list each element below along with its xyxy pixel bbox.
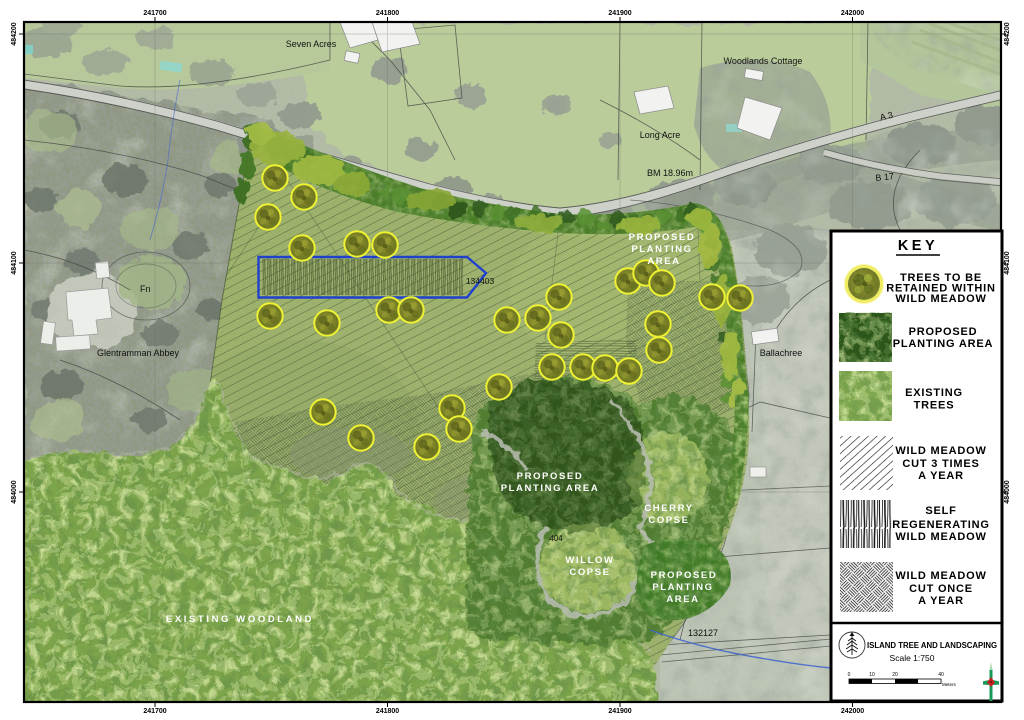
svg-text:WILLOW: WILLOW xyxy=(565,555,614,566)
svg-text:ISLAND TREE AND LANDSCAPING: ISLAND TREE AND LANDSCAPING xyxy=(867,641,997,650)
svg-text:A YEAR: A YEAR xyxy=(918,595,964,607)
svg-text:Glentramman Abbey: Glentramman Abbey xyxy=(97,348,180,358)
svg-text:484100: 484100 xyxy=(1004,251,1011,274)
svg-text:B 17: B 17 xyxy=(875,171,894,183)
svg-text:AREA: AREA xyxy=(647,256,680,267)
svg-text:Scale 1:750: Scale 1:750 xyxy=(890,653,935,663)
svg-text:484100: 484100 xyxy=(11,251,18,274)
svg-text:Seven Acres: Seven Acres xyxy=(286,39,337,49)
svg-text:BM 18.96m: BM 18.96m xyxy=(647,168,693,178)
svg-text:484000: 484000 xyxy=(11,480,18,503)
svg-text:0: 0 xyxy=(848,672,851,678)
svg-text:PROPOSED: PROPOSED xyxy=(629,232,696,243)
svg-text:Meters: Meters xyxy=(942,682,957,687)
svg-text:PLANTING AREA: PLANTING AREA xyxy=(501,483,600,494)
svg-text:241700: 241700 xyxy=(143,708,166,715)
svg-text:241800: 241800 xyxy=(376,708,399,715)
svg-text:PLANTING: PLANTING xyxy=(631,244,692,255)
svg-text:484200: 484200 xyxy=(11,22,18,45)
svg-text:WILD MEADOW: WILD MEADOW xyxy=(895,570,986,582)
svg-text:WILD MEADOW: WILD MEADOW xyxy=(895,293,986,305)
svg-text:REGENERATING: REGENERATING xyxy=(892,519,989,531)
svg-text:484200: 484200 xyxy=(1004,22,1011,45)
svg-text:KEY: KEY xyxy=(898,238,938,254)
svg-text:A YEAR: A YEAR xyxy=(918,470,964,482)
svg-text:404: 404 xyxy=(549,534,563,543)
svg-text:PROPOSED: PROPOSED xyxy=(909,326,978,338)
svg-text:134403: 134403 xyxy=(466,276,495,286)
svg-text:132127: 132127 xyxy=(688,628,718,638)
svg-text:Woodlands Cottage: Woodlands Cottage xyxy=(724,56,803,66)
svg-text:EXISTING WOODLAND: EXISTING WOODLAND xyxy=(166,614,314,625)
svg-text:241900: 241900 xyxy=(608,10,631,17)
svg-text:10: 10 xyxy=(869,672,875,678)
svg-text:CUT 3 TIMES: CUT 3 TIMES xyxy=(902,458,979,470)
svg-text:TREES: TREES xyxy=(914,400,955,412)
svg-text:40: 40 xyxy=(938,672,944,678)
svg-text:241800: 241800 xyxy=(376,10,399,17)
svg-text:PLANTING: PLANTING xyxy=(652,582,713,593)
svg-text:PLANTING AREA: PLANTING AREA xyxy=(893,338,993,350)
svg-text:241900: 241900 xyxy=(608,708,631,715)
svg-text:Fn: Fn xyxy=(140,284,151,294)
svg-text:20: 20 xyxy=(892,672,898,678)
svg-text:484000: 484000 xyxy=(1004,480,1011,503)
svg-text:SELF: SELF xyxy=(925,505,956,517)
svg-text:WILD MEADOW: WILD MEADOW xyxy=(895,531,986,543)
svg-text:Ballachree: Ballachree xyxy=(760,348,803,358)
svg-text:CUT ONCE: CUT ONCE xyxy=(909,583,973,595)
svg-text:AREA: AREA xyxy=(666,594,699,605)
svg-text:Long Acre: Long Acre xyxy=(640,130,681,140)
svg-text:PROPOSED: PROPOSED xyxy=(517,471,584,482)
svg-text:COPSE: COPSE xyxy=(569,567,610,578)
svg-text:241700: 241700 xyxy=(143,10,166,17)
svg-text:242000: 242000 xyxy=(841,10,864,17)
svg-text:WILD MEADOW: WILD MEADOW xyxy=(895,445,986,457)
svg-text:242000: 242000 xyxy=(841,708,864,715)
svg-text:CHERRY: CHERRY xyxy=(644,503,693,514)
svg-text:EXISTING: EXISTING xyxy=(905,387,963,399)
svg-text:PROPOSED: PROPOSED xyxy=(651,570,718,581)
svg-text:COPSE: COPSE xyxy=(648,515,689,526)
